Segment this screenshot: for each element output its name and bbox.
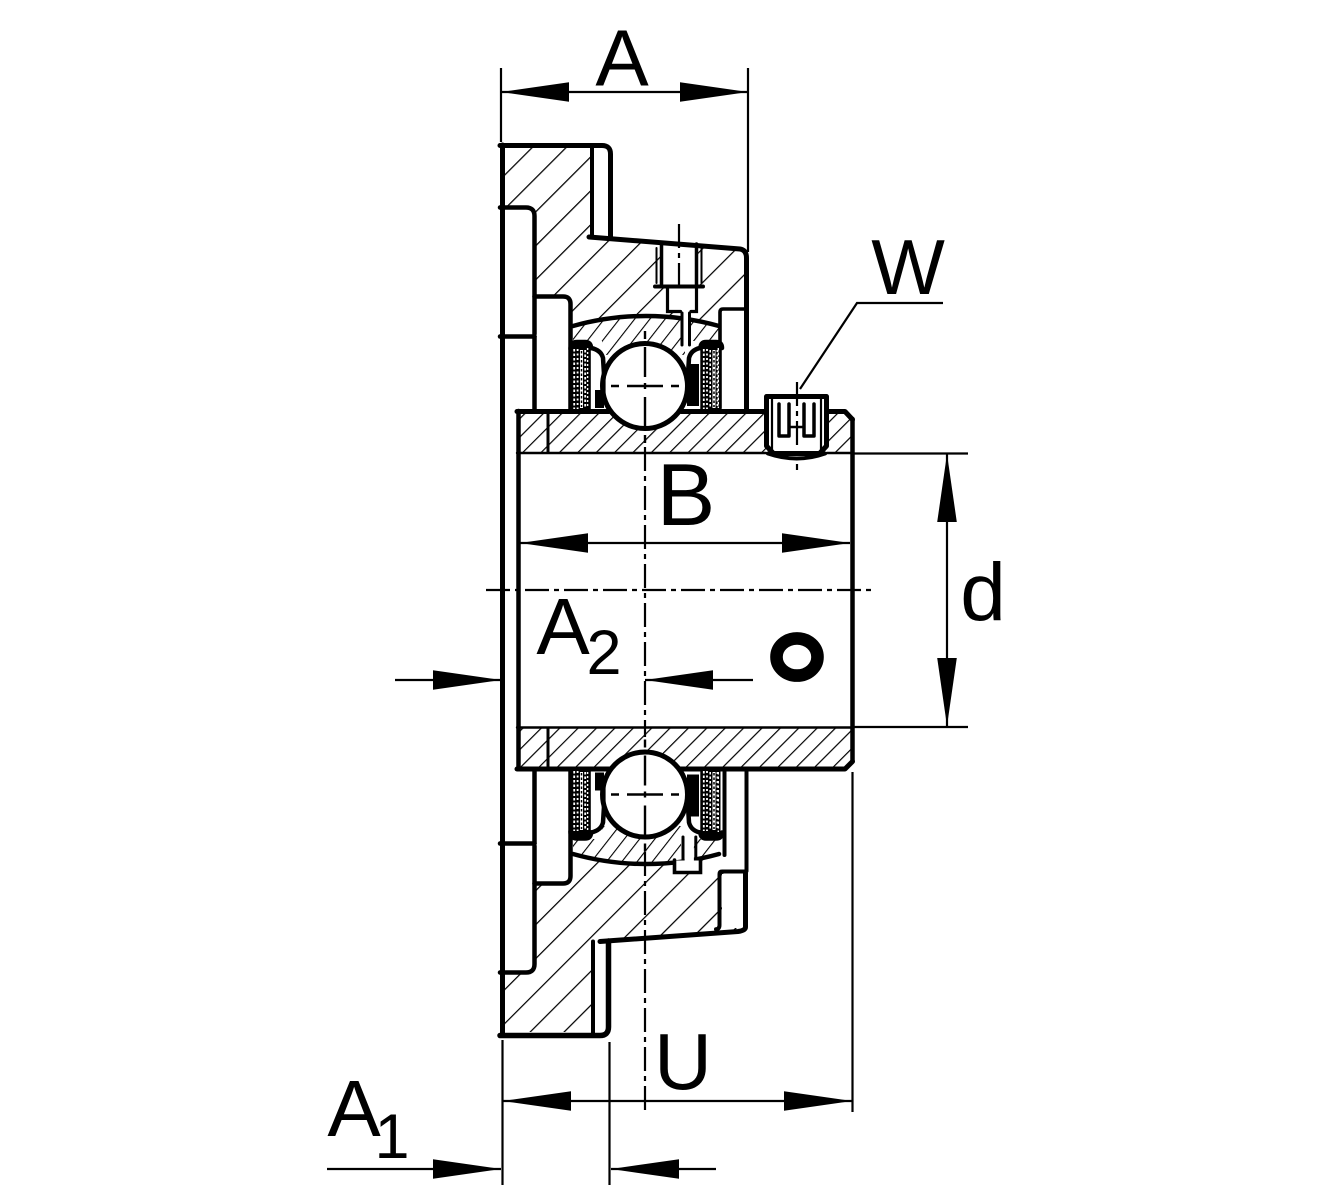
svg-text:d: d	[960, 547, 1006, 638]
svg-text:A: A	[536, 582, 590, 671]
svg-text:2: 2	[586, 618, 621, 688]
svg-text:A: A	[327, 1064, 381, 1153]
svg-text:A: A	[595, 14, 649, 103]
svg-text:B: B	[657, 445, 716, 544]
svg-text:W: W	[871, 223, 945, 311]
svg-text:1: 1	[374, 1102, 409, 1172]
svg-text:U: U	[654, 1017, 712, 1106]
